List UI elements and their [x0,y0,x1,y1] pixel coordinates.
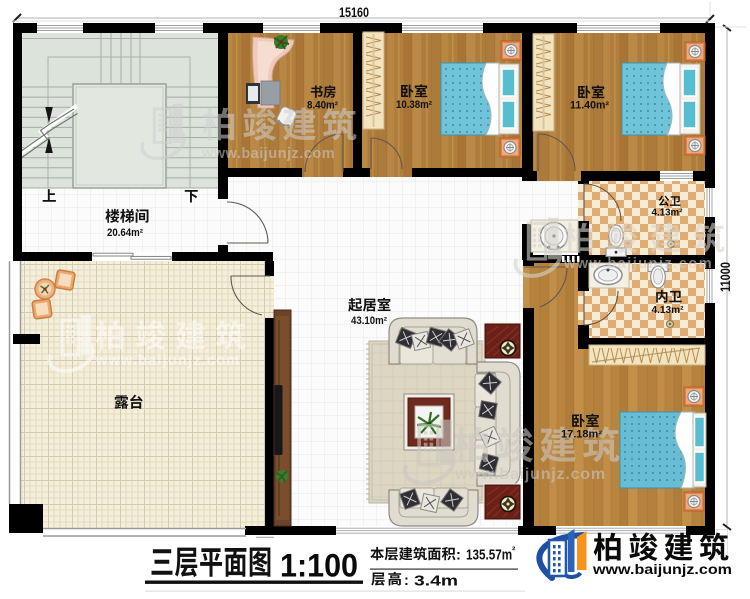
svg-text:17.18m²: 17.18m² [561,429,602,441]
svg-text:3.4m: 3.4m [414,573,458,590]
svg-text:www.baijunjz.com: www.baijunjz.com [201,146,335,162]
svg-text::: : [404,573,409,589]
svg-text:11.40m²: 11.40m² [570,100,609,112]
svg-text::: : [456,548,461,564]
svg-text:10.38m²: 10.38m² [396,99,432,111]
svg-text:135.57m: 135.57m [466,546,512,563]
svg-text:www.baijunjz.com: www.baijunjz.com [563,256,713,272]
svg-text:www.baijunjz.com: www.baijunjz.com [95,353,240,369]
svg-text:11000: 11000 [717,262,733,292]
svg-text:20.64m²: 20.64m² [107,227,143,239]
svg-text:www.baijunjz.com: www.baijunjz.com [454,466,606,483]
svg-text:8.40m²: 8.40m² [307,100,338,112]
svg-text:4.13m²: 4.13m² [652,208,684,219]
svg-text:www.baijunjz.com: www.baijunjz.com [592,562,732,577]
svg-text:1:100: 1:100 [280,548,358,584]
svg-text:43.10m²: 43.10m² [351,315,387,327]
svg-text:4.13m²: 4.13m² [652,304,684,316]
svg-text:15160: 15160 [339,4,369,20]
